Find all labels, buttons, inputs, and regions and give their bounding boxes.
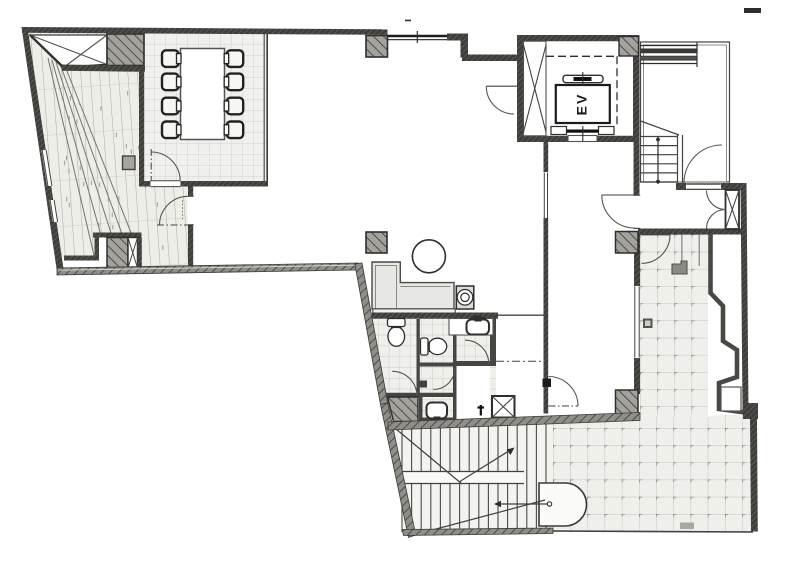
svg-text:EV: EV xyxy=(574,93,590,116)
